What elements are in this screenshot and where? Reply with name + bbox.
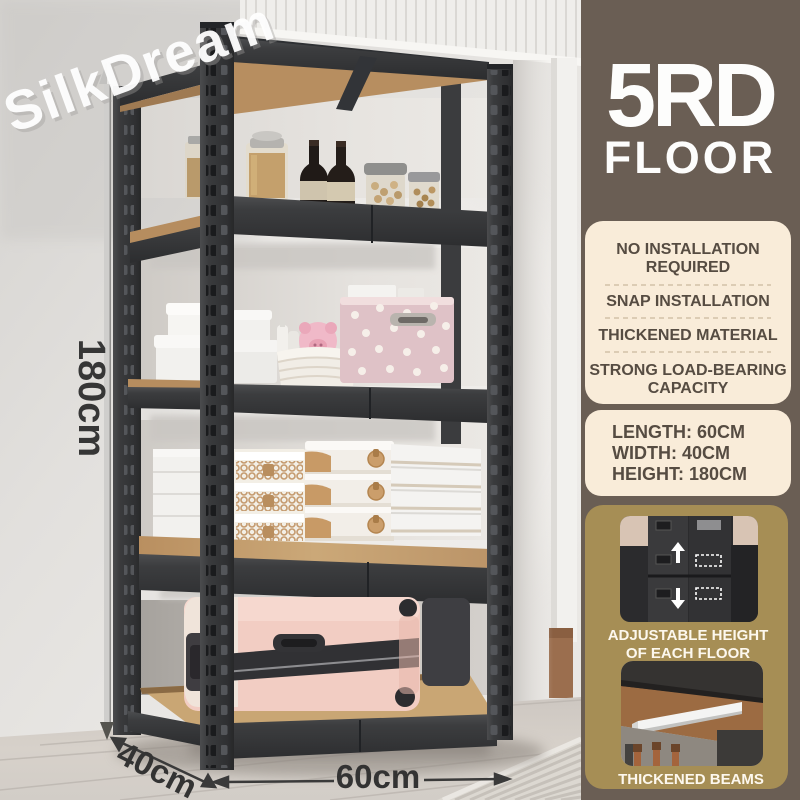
svg-text:NO INSTALLATION: NO INSTALLATION — [616, 241, 759, 258]
svg-text:THICKENED MATERIAL: THICKENED MATERIAL — [598, 327, 777, 344]
svg-text:ADJUSTABLE HEIGHT: ADJUSTABLE HEIGHT — [608, 627, 769, 644]
svg-text:5RD: 5RD — [606, 46, 775, 146]
svg-text:THICKENED BEAMS: THICKENED BEAMS — [618, 771, 764, 788]
svg-text:REQUIRED: REQUIRED — [646, 259, 730, 276]
svg-text:OF EACH FLOOR: OF EACH FLOOR — [626, 645, 750, 662]
svg-text:180cm: 180cm — [70, 339, 112, 457]
svg-text:HEIGHT: 180CM: HEIGHT: 180CM — [612, 464, 747, 484]
svg-text:LENGTH: 60CM: LENGTH: 60CM — [612, 422, 745, 442]
svg-text:FLOOR: FLOOR — [604, 132, 776, 183]
svg-text:60cm: 60cm — [336, 758, 420, 795]
svg-text:STRONG LOAD-BEARING: STRONG LOAD-BEARING — [589, 362, 786, 379]
svg-text:CAPACITY: CAPACITY — [648, 380, 729, 397]
svg-text:WIDTH: 40CM: WIDTH: 40CM — [612, 443, 730, 463]
svg-text:SNAP INSTALLATION: SNAP INSTALLATION — [606, 293, 770, 310]
